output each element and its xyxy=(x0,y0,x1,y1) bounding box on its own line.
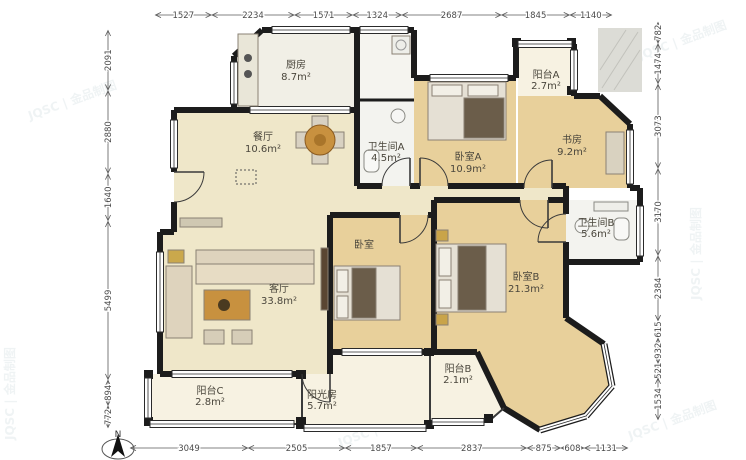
svg-text:615: 615 xyxy=(654,321,664,337)
sink-icon xyxy=(391,109,405,123)
svg-text:1534: 1534 xyxy=(654,388,664,410)
room-label-balcony-c: 阳台C2.8m² xyxy=(195,384,225,408)
svg-text:521: 521 xyxy=(654,363,664,379)
svg-text:1140: 1140 xyxy=(580,11,602,21)
svg-text:JQSC | 金品制图: JQSC | 金品制图 xyxy=(2,347,17,441)
svg-text:2234: 2234 xyxy=(242,11,264,21)
vanity-icon xyxy=(594,202,628,211)
svg-text:3170: 3170 xyxy=(654,201,664,223)
room-label-balcony-b: 阳台B2.1m² xyxy=(443,362,473,386)
svg-text:1857: 1857 xyxy=(370,444,392,454)
floor-plan-svg: JQSC | 金品制图 JQSC | 金品制图 JQSC | 金品制图 JQSC… xyxy=(0,0,746,460)
svg-text:1474: 1474 xyxy=(654,53,664,75)
svg-text:875: 875 xyxy=(536,444,552,454)
svg-text:JQSC | 金品制图: JQSC | 金品制图 xyxy=(25,77,118,123)
svg-text:932: 932 xyxy=(654,343,664,359)
svg-text:JQSC | 金品制图: JQSC | 金品制图 xyxy=(625,397,718,443)
desk-icon xyxy=(606,132,624,174)
toilet-icon xyxy=(614,218,629,240)
svg-text:1324: 1324 xyxy=(366,11,388,21)
svg-text:5499: 5499 xyxy=(104,290,114,312)
svg-text:2880: 2880 xyxy=(104,121,114,143)
room-label-bath-a: 卫生间A4.5m² xyxy=(368,140,405,164)
svg-text:1845: 1845 xyxy=(525,11,547,21)
svg-text:782: 782 xyxy=(654,25,664,41)
svg-text:3073: 3073 xyxy=(654,115,664,137)
svg-text:3049: 3049 xyxy=(178,444,200,454)
room-label-balcony-a: 阳台A2.7m² xyxy=(531,68,561,92)
bed-icon xyxy=(436,230,506,325)
bed-icon xyxy=(334,266,400,320)
svg-text:2687: 2687 xyxy=(441,11,463,21)
tv-cabinet-icon xyxy=(321,248,328,310)
dimension-chain-bottom: 30492505185728378756081131 xyxy=(131,444,628,454)
svg-text:2091: 2091 xyxy=(104,49,114,71)
dimension-chain-top: 1527223415711324268718451140 xyxy=(156,11,612,21)
room-label-bedroom-b: 卧室B21.3m² xyxy=(508,270,544,295)
room-label-sunroom: 阳光房5.7m² xyxy=(307,388,337,412)
svg-text:1527: 1527 xyxy=(172,11,194,21)
dimension-chain-right: 78214743073317023846159325211534 xyxy=(654,23,664,420)
svg-text:1571: 1571 xyxy=(313,11,335,21)
svg-text:JQSC | 金品制图: JQSC | 金品制图 xyxy=(635,17,728,63)
bed-icon xyxy=(428,82,506,140)
svg-text:1131: 1131 xyxy=(595,444,617,454)
svg-text:2837: 2837 xyxy=(461,444,483,454)
svg-text:JQSC | 金品制图: JQSC | 金品制图 xyxy=(688,207,703,301)
room-label-bath-b: 卫生间B5.6m² xyxy=(578,216,615,240)
washer-icon xyxy=(392,36,410,54)
floor-plan-image: JQSC | 金品制图 JQSC | 金品制图 JQSC | 金品制图 JQSC… xyxy=(0,0,746,460)
room-label-bedroom-mid: 卧室 xyxy=(354,238,374,251)
room-balcony-c-floor xyxy=(148,374,302,424)
decor-icon xyxy=(218,299,230,311)
svg-text:1640: 1640 xyxy=(104,186,114,208)
svg-text:2384: 2384 xyxy=(654,277,664,299)
svg-text:894: 894 xyxy=(104,385,114,401)
svg-text:2505: 2505 xyxy=(286,444,308,454)
north-arrow-icon: N xyxy=(102,430,134,459)
console-icon xyxy=(180,218,222,227)
svg-text:772: 772 xyxy=(104,409,114,425)
room-label-bedroom-a: 卧室A10.9m² xyxy=(450,150,486,175)
svg-text:608: 608 xyxy=(564,444,580,454)
